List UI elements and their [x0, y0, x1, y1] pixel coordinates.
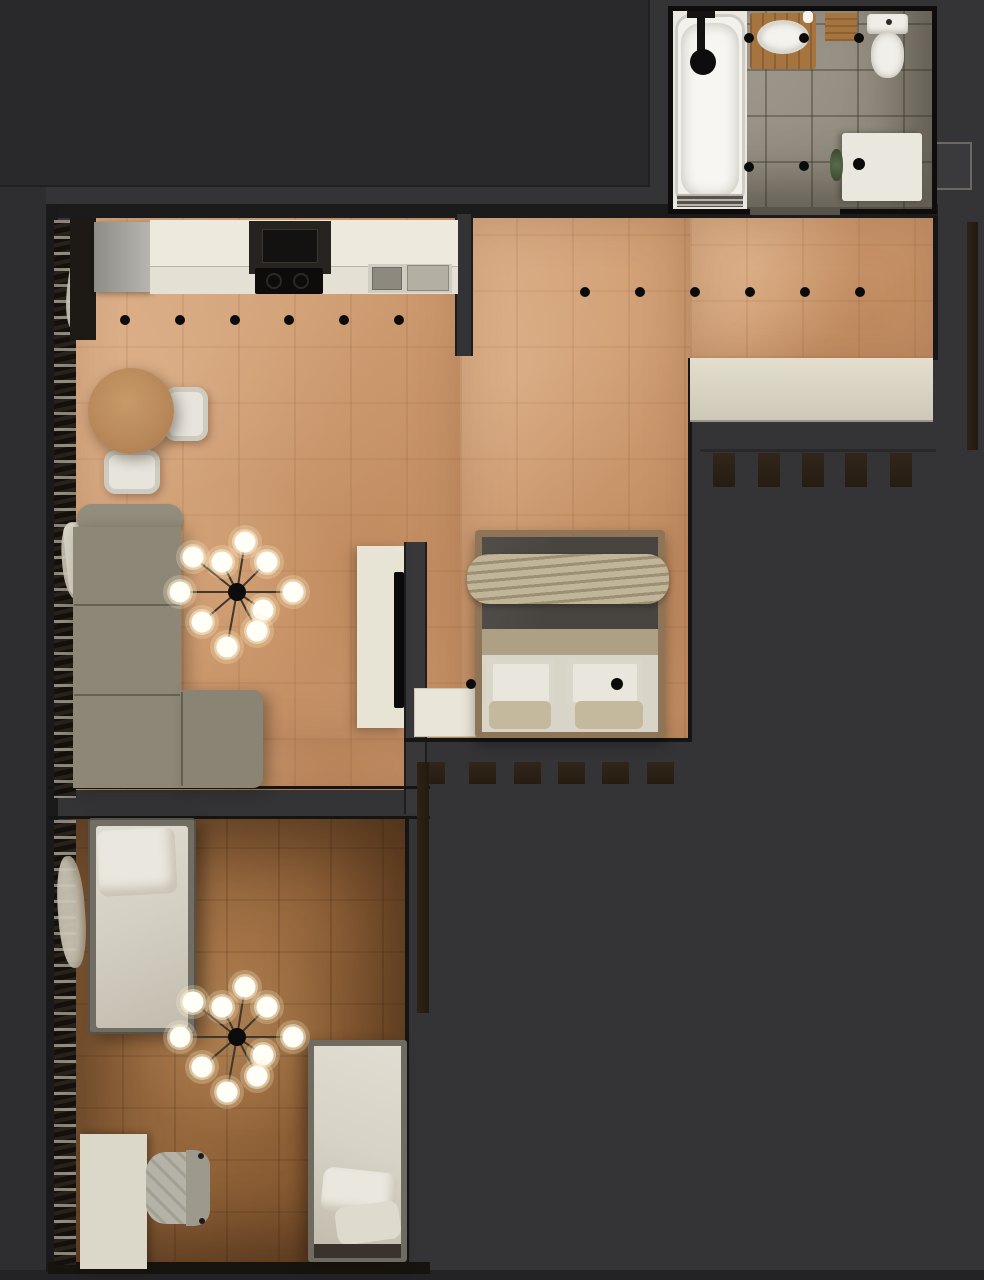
office-chair-back — [186, 1150, 210, 1226]
toilet-bowl — [871, 32, 904, 78]
ceiling-spot-light — [854, 33, 864, 43]
bathtub-basin — [681, 23, 739, 197]
desk — [80, 1134, 147, 1269]
sink-drainer — [407, 265, 449, 291]
single-bed-pillow — [96, 827, 177, 897]
bath-towel — [677, 194, 743, 207]
burner-ring — [293, 273, 309, 289]
dining-chair — [104, 450, 160, 494]
ceiling-spot-light — [745, 287, 755, 297]
sofa-seam — [74, 694, 180, 696]
bath-mat — [825, 13, 857, 41]
radiator-segment — [713, 453, 735, 487]
shower-head — [690, 49, 716, 75]
ceiling-spot-light — [690, 287, 700, 297]
wall-seam — [933, 216, 938, 360]
background-left-band — [0, 187, 46, 1280]
ceiling-spot-light — [800, 287, 810, 297]
ceiling-spot-light — [230, 315, 240, 325]
ceiling-spot-light — [339, 315, 349, 325]
soap-bottle — [803, 11, 813, 23]
floor-plan-stage — [0, 0, 984, 1280]
sofa-seam — [181, 692, 183, 786]
bed-accent-pillow — [489, 701, 551, 729]
ceiling-spot-light — [799, 161, 809, 171]
corner-sofa-body — [73, 527, 181, 788]
ceiling-spot-light — [635, 287, 645, 297]
ceiling-spot-light — [175, 315, 185, 325]
radiator-segment — [758, 453, 780, 487]
radiator-segment — [647, 762, 674, 784]
ceiling-spot-light — [611, 678, 623, 690]
flush-button — [886, 19, 892, 25]
background-seam — [648, 0, 650, 186]
ceiling-spot-light — [466, 679, 476, 689]
radiator-segment — [845, 453, 867, 487]
chair-foot — [199, 1218, 205, 1224]
wall-seam — [404, 738, 692, 742]
kitchen-corner-shadow — [70, 218, 96, 340]
background-seam — [0, 185, 650, 187]
radiator-segment — [802, 453, 824, 487]
ceiling-spot-light — [799, 33, 809, 43]
dresser — [414, 688, 478, 737]
ceiling-spot-light — [580, 287, 590, 297]
radiator-segment — [469, 762, 496, 784]
single-bed-footboard — [314, 1244, 401, 1258]
radiator-segment — [514, 762, 541, 784]
range-hood-screen — [262, 229, 318, 263]
radiator-segment — [602, 762, 629, 784]
plant — [830, 149, 843, 181]
radiator-segment — [558, 762, 585, 784]
dining-table — [88, 368, 174, 454]
wardrobe — [690, 358, 933, 422]
sofa-chaise — [181, 690, 263, 788]
ceiling-spot-light — [120, 315, 130, 325]
tv — [394, 572, 404, 708]
wall-trim-strip — [967, 222, 978, 450]
ceiling-spot-light — [284, 315, 294, 325]
bathroom-door-opening — [750, 207, 840, 215]
sink-basin — [372, 267, 402, 290]
burner-ring — [266, 273, 282, 289]
bed-duvet-fold — [482, 629, 658, 655]
radiator-segment — [890, 453, 912, 487]
ceiling-spot-light — [855, 287, 865, 297]
fridge — [94, 222, 150, 292]
ceiling-spot-light — [853, 158, 865, 170]
wall-trim-strip — [417, 762, 429, 1013]
ceiling-spot-light — [744, 33, 754, 43]
hall-floor — [690, 218, 935, 358]
sofa-seam — [74, 604, 180, 606]
ceiling-spot-light — [744, 162, 754, 172]
throw-blanket — [467, 554, 669, 604]
shower-hose — [697, 13, 705, 51]
ceiling-spot-light — [394, 315, 404, 325]
chair-foot — [198, 1153, 204, 1159]
bed-accent-pillow — [575, 701, 643, 729]
background-top-band — [0, 0, 650, 187]
radiator-rail — [700, 449, 936, 452]
